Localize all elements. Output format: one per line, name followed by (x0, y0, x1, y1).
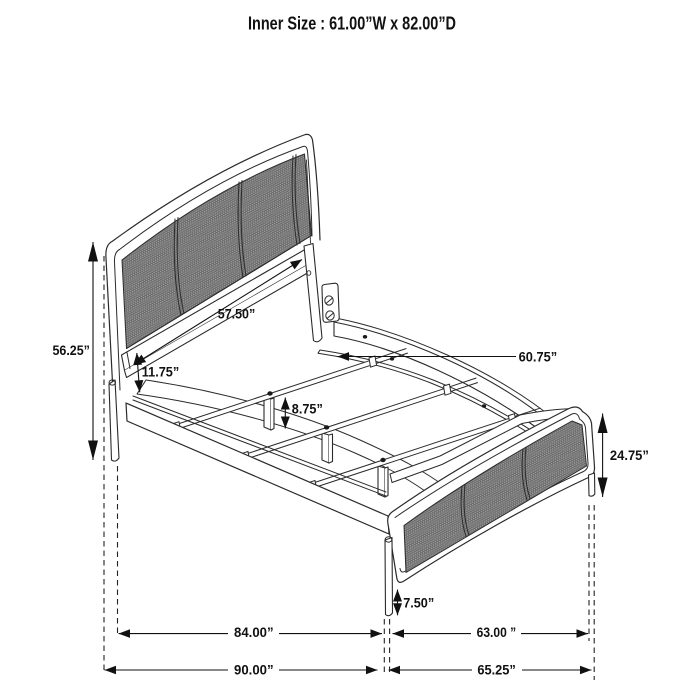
svg-text:11.75”: 11.75” (142, 364, 180, 380)
svg-text:7.50”: 7.50” (403, 595, 434, 611)
svg-text:90.00”: 90.00” (234, 661, 274, 677)
svg-text:84.00”: 84.00” (234, 624, 274, 640)
svg-text:Inner Size : 61.00”W x 82.00”D: Inner Size : 61.00”W x 82.00”D (248, 13, 456, 34)
svg-text:65.25”: 65.25” (477, 662, 516, 678)
svg-text:8.75”: 8.75” (292, 400, 323, 416)
svg-text:56.25”: 56.25” (52, 342, 90, 358)
svg-text:57.50”: 57.50” (218, 306, 256, 322)
svg-text:63.00 ”: 63.00 ” (477, 624, 517, 640)
svg-text:24.75”: 24.75” (610, 447, 649, 463)
svg-text:60.75”: 60.75” (519, 348, 558, 364)
